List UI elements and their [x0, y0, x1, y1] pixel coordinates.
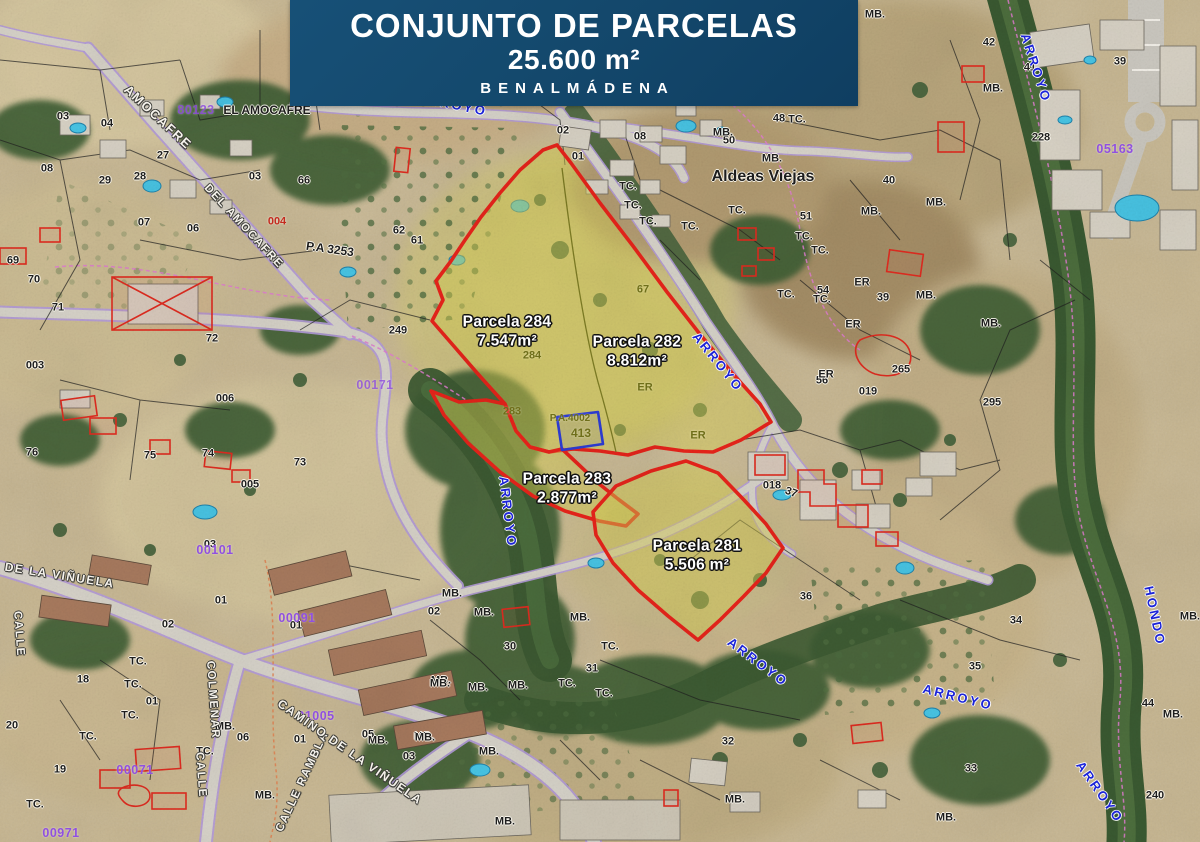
- parcel-label-284: Parcela 2847.547m²: [463, 313, 552, 352]
- parcel-label-281: Parcela 2815.506 m²: [653, 537, 742, 576]
- parcel-label-282: Parcela 2828.812m²: [593, 333, 682, 372]
- banner-total-area: 25.600 m²: [508, 45, 640, 76]
- banner-location: BENALMÁDENA: [473, 80, 675, 97]
- parcel-name: Parcela 283: [523, 470, 612, 489]
- title-banner: CONJUNTO DE PARCELAS 25.600 m² BENALMÁDE…: [290, 0, 858, 106]
- parcel-name: Parcela 282: [593, 333, 682, 352]
- parcel-label-283: Parcela 2832.877m²: [523, 470, 612, 509]
- parcel-name: Parcela 281: [653, 537, 742, 556]
- parcel-area: 7.547m²: [463, 332, 552, 351]
- parcel-area: 2.877m²: [523, 489, 612, 508]
- banner-title: CONJUNTO DE PARCELAS: [350, 9, 798, 44]
- map-screenshot: 0304082728290366070669707172003006767574…: [0, 0, 1200, 842]
- parcel-area: 8.812m²: [593, 352, 682, 371]
- parcel-name: Parcela 284: [463, 313, 552, 332]
- parcel-label-layer: Parcela 2847.547m²Parcela 2828.812m²Parc…: [0, 0, 1200, 842]
- parcel-area: 5.506 m²: [653, 556, 742, 575]
